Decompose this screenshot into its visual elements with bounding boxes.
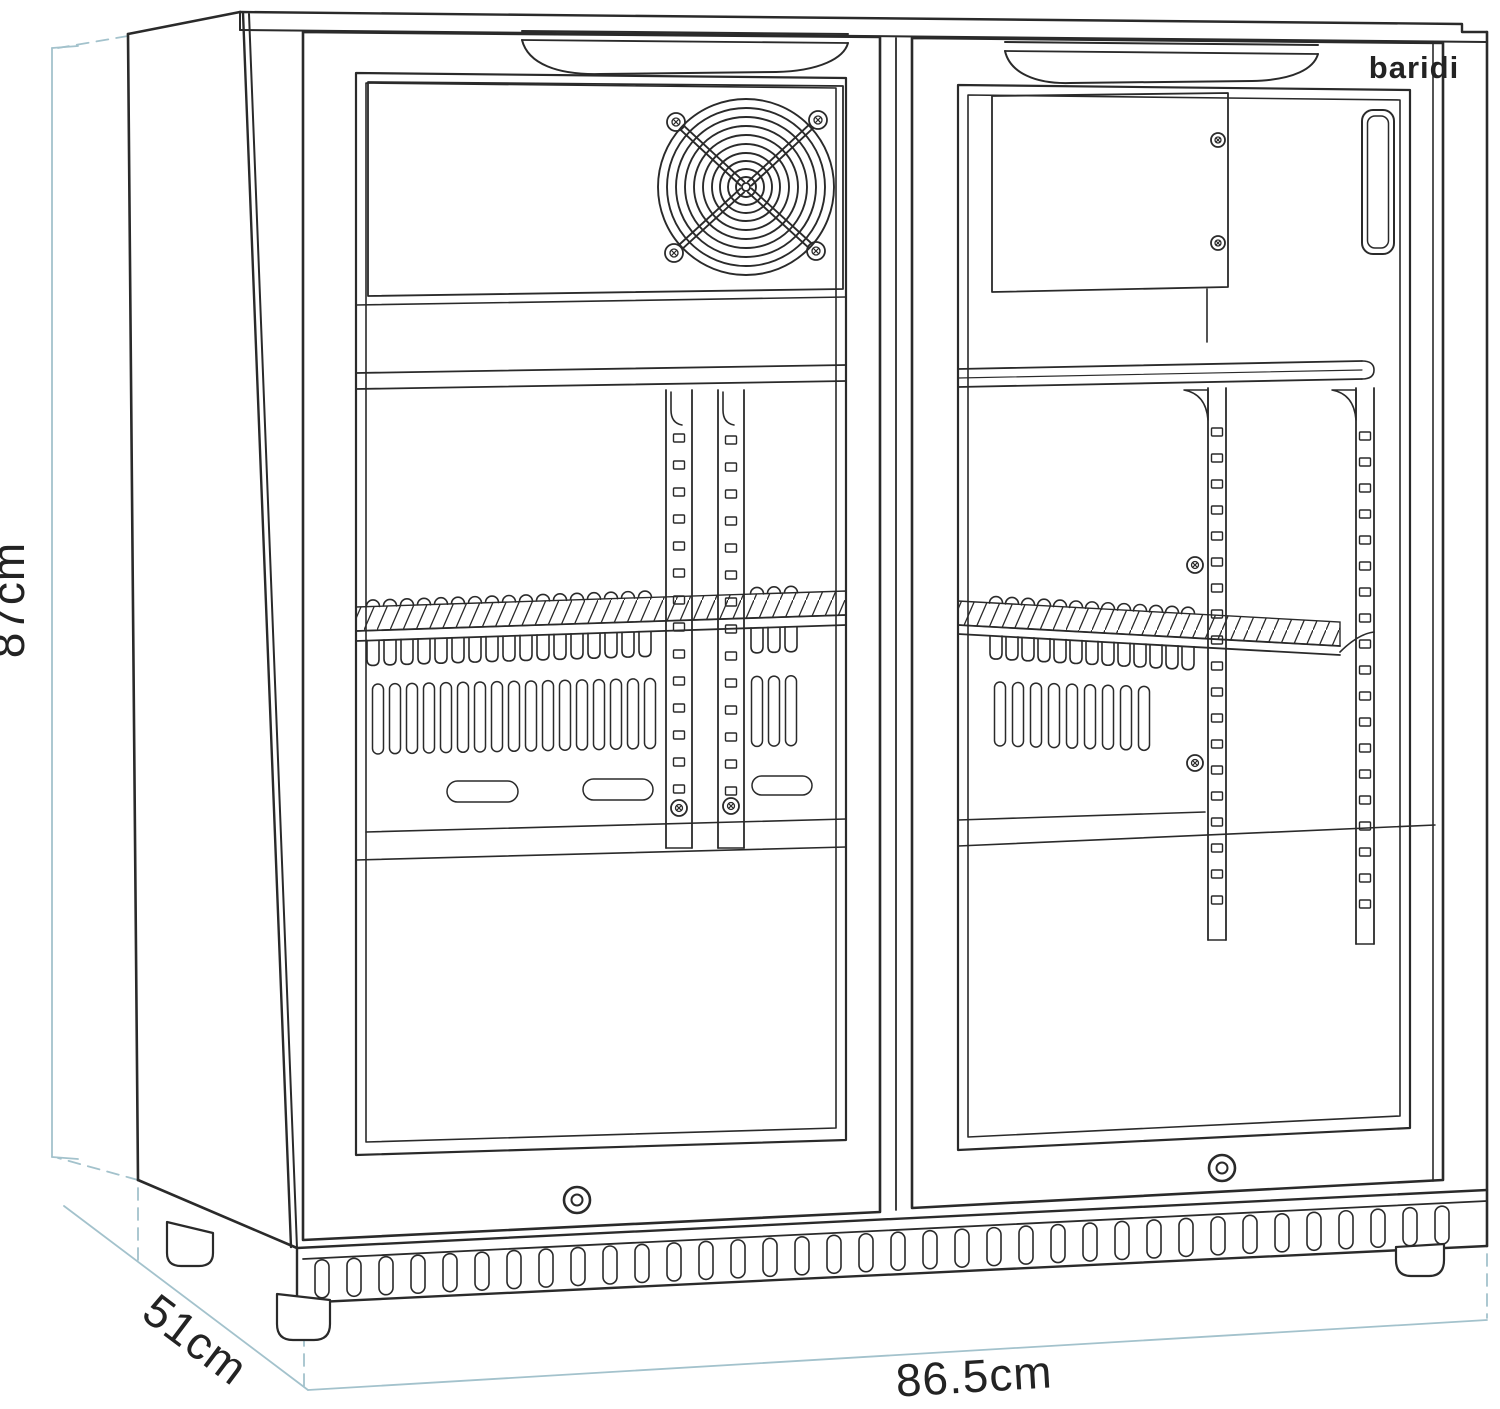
height-dimension-label: 87cm <box>0 542 34 658</box>
brand-logo: baridi <box>1369 50 1459 85</box>
depth-dimension-label: 51cm <box>133 1283 257 1395</box>
dimension-height <box>52 36 138 1180</box>
fridge-cabinet <box>128 12 1487 1303</box>
width-dimension-label: 86.5cm <box>894 1345 1054 1406</box>
fridge-technical-drawing: baridi 87cm 51cm 86.5cm <box>0 0 1500 1409</box>
diagram-canvas: baridi 87cm 51cm 86.5cm <box>0 0 1500 1409</box>
